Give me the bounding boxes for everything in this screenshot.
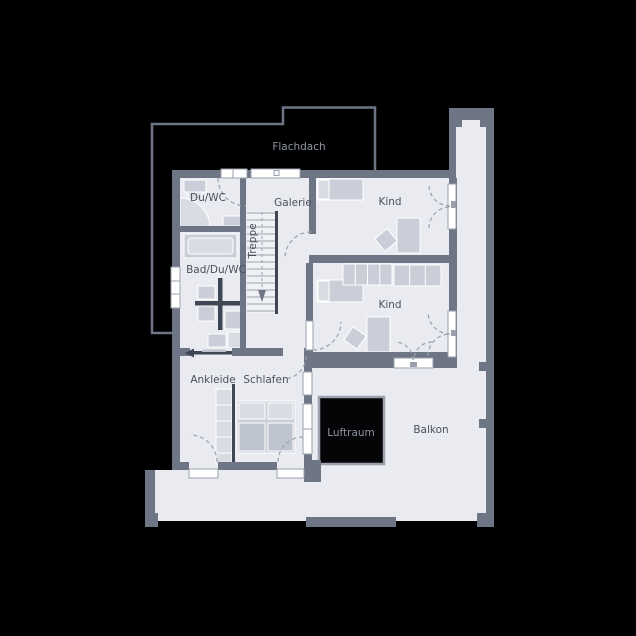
label-bad-du-wc: Bad/Du/WC bbox=[186, 264, 246, 276]
label-schlafen: Schlafen bbox=[243, 374, 288, 386]
stair-rail bbox=[275, 211, 278, 314]
threshold-ankleide bbox=[189, 469, 218, 478]
wall-left bbox=[172, 178, 180, 462]
mattress bbox=[239, 423, 265, 451]
label-balkon: Balkon bbox=[413, 424, 448, 436]
wall-kind-bottom bbox=[306, 352, 457, 368]
label-treppe: Treppe bbox=[247, 223, 259, 259]
pillow bbox=[318, 180, 329, 199]
balcony-pilaster bbox=[479, 419, 486, 428]
vanity-counter bbox=[195, 301, 240, 306]
balcony-notch bbox=[456, 120, 462, 127]
ankleide-wardrobe bbox=[216, 389, 232, 469]
balcony-corner-block bbox=[477, 513, 494, 527]
window-left bbox=[171, 267, 180, 308]
desk bbox=[367, 317, 390, 352]
ankleide-partition bbox=[232, 384, 235, 469]
sink bbox=[223, 216, 242, 226]
toilet bbox=[184, 180, 206, 192]
balcony-corner-block bbox=[145, 513, 158, 527]
wall-duwc-bottom bbox=[180, 226, 246, 232]
label-flachdach: Flachdach bbox=[272, 141, 325, 153]
pillow bbox=[239, 403, 265, 419]
vanity-partition bbox=[218, 278, 223, 330]
pillow bbox=[318, 281, 329, 301]
wall-kind-divider bbox=[309, 255, 457, 263]
desk bbox=[397, 218, 420, 253]
floor-plan: Flachdach Du/WC Galerie Kind Bad/Du/WC T… bbox=[0, 0, 636, 636]
balcony-outer-right-wall bbox=[486, 108, 494, 527]
label-kind-upper: Kind bbox=[378, 196, 401, 208]
mattress bbox=[268, 423, 293, 451]
washbasin bbox=[198, 306, 215, 321]
wall-corridor bbox=[306, 263, 313, 321]
door-corridor-kind-frame bbox=[306, 321, 313, 350]
pillow bbox=[268, 403, 293, 419]
bathtub-inner bbox=[188, 238, 233, 254]
balcony-strip-left-wall bbox=[449, 108, 456, 178]
label-galerie: Galerie bbox=[274, 197, 312, 209]
label-luftraum: Luftraum bbox=[327, 427, 375, 439]
window-top-a bbox=[221, 169, 247, 178]
balcony-pilaster bbox=[479, 362, 486, 371]
wall-schlafen-top-b bbox=[232, 348, 283, 356]
label-kind-lower: Kind bbox=[378, 299, 401, 311]
window-schlafen-a bbox=[303, 372, 312, 395]
threshold-schlafen bbox=[277, 469, 304, 478]
balcony-bottom-segment bbox=[306, 517, 396, 527]
washbasin bbox=[198, 286, 215, 299]
label-du-wc: Du/WC bbox=[190, 192, 226, 204]
label-ankleide: Ankleide bbox=[190, 374, 235, 386]
toilet bbox=[208, 334, 226, 347]
wardrobe bbox=[394, 265, 441, 286]
wall-top bbox=[172, 170, 449, 178]
balcony-notch bbox=[480, 120, 486, 127]
